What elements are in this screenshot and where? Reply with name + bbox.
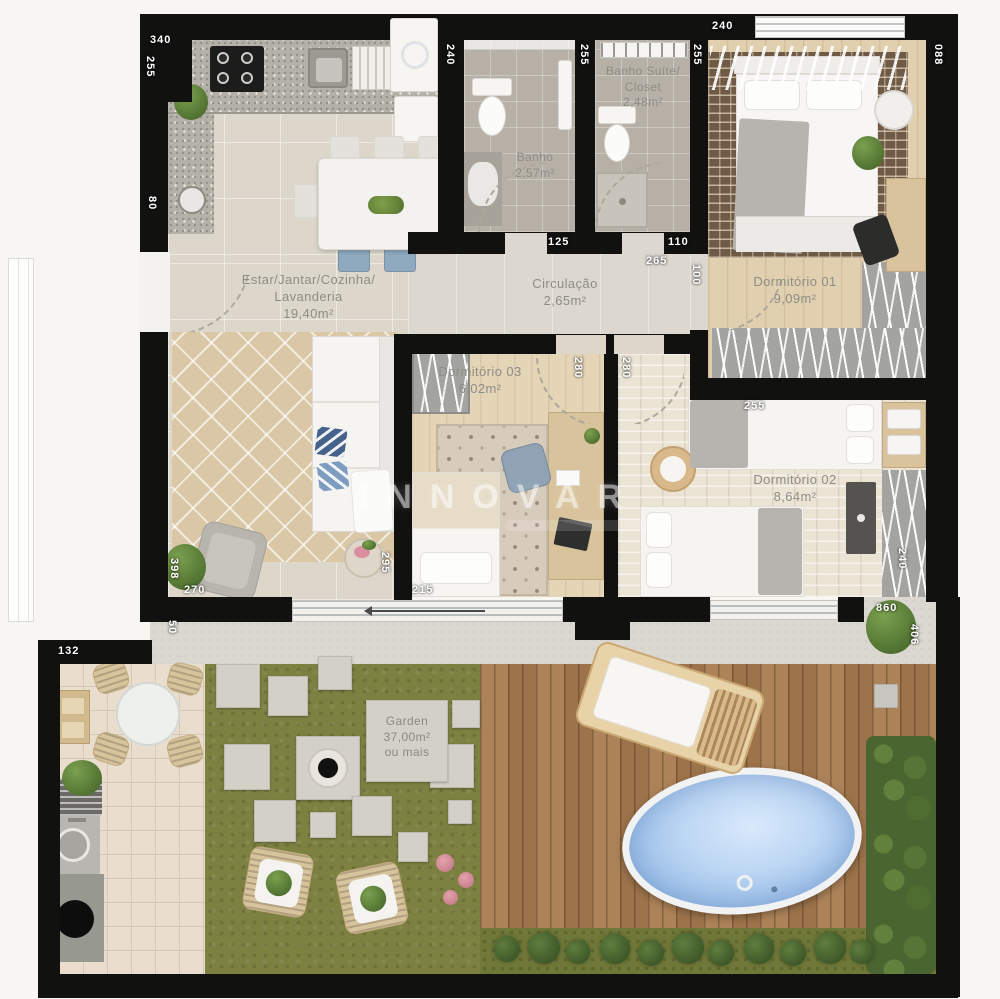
bath-name: Banho xyxy=(492,150,578,166)
wall-bottom-center-stub xyxy=(575,622,630,640)
living-area: 19,40m² xyxy=(226,306,391,323)
garden-paver xyxy=(310,812,336,838)
dim-label: 50 xyxy=(166,620,178,634)
living-sliding-door xyxy=(292,600,563,622)
nightstand-round xyxy=(874,90,914,130)
hedge xyxy=(866,736,936,974)
wall-bottom-center xyxy=(563,597,710,622)
sink-basin xyxy=(316,58,342,82)
floor-plan: Estar/Jantar/Cozinha/ Lavanderia 19,40m²… xyxy=(0,0,1000,999)
sofa-pillow-zigzag xyxy=(314,426,348,458)
dim-label: 265 xyxy=(646,255,667,267)
pink-flowers xyxy=(458,872,474,888)
bedroom3-door-arc xyxy=(536,354,606,424)
bed2-top-pillow xyxy=(846,404,874,432)
bedroom3-area: 6,02m² xyxy=(414,381,546,398)
shrub xyxy=(744,934,774,964)
bedroom2-label: Dormitório 02 8,64m² xyxy=(722,472,868,506)
walkway-floor xyxy=(150,620,936,664)
bed2-bottom-throw xyxy=(758,508,802,595)
bedroom3-label: Dormitório 03 6,02m² xyxy=(414,364,546,398)
stove-burner xyxy=(241,52,253,64)
bath-shelf xyxy=(558,60,572,130)
entry-opening xyxy=(138,252,170,332)
patio-bench xyxy=(56,690,90,744)
garden-paver xyxy=(224,744,270,790)
shrub xyxy=(494,936,520,962)
garden-note: ou mais xyxy=(366,745,448,761)
dim-label: 255 xyxy=(144,56,156,77)
pink-flowers xyxy=(443,890,458,905)
garden-chair xyxy=(334,860,410,936)
wall-bottom xyxy=(38,974,958,998)
bedroom2-door-opening xyxy=(614,335,664,354)
dim-label: 125 xyxy=(548,236,569,248)
wall-living-bedroom3 xyxy=(394,334,412,602)
dim-label: 280 xyxy=(620,357,632,378)
dim-label: 240 xyxy=(896,548,908,569)
bedroom1-label: Dormitório 01 9,09m² xyxy=(722,274,868,308)
dim-label: 255 xyxy=(578,44,590,65)
bed2-top-throw xyxy=(690,400,748,468)
garden-paver xyxy=(254,800,296,842)
bed2-bottom-pillow xyxy=(646,552,672,588)
bed2-top-pillow xyxy=(846,436,874,464)
dim-label: 132 xyxy=(58,645,79,657)
kitchen-side-sink xyxy=(178,186,206,214)
stove-burner xyxy=(241,72,253,84)
stove-burner xyxy=(217,72,229,84)
shrub xyxy=(708,940,734,966)
circulation-area: 2,65m² xyxy=(500,293,630,310)
shrub xyxy=(638,940,664,966)
watermark-tagline xyxy=(505,520,675,531)
shrub xyxy=(672,932,704,964)
desk-plant xyxy=(584,428,600,444)
bench-cushion xyxy=(61,721,85,739)
deck-paver xyxy=(874,684,898,708)
bedroom1-plant xyxy=(852,136,884,170)
dim-label: 240 xyxy=(444,44,456,65)
dim-label: 215 xyxy=(412,584,433,596)
shrub xyxy=(850,940,874,964)
dim-label: 406 xyxy=(908,624,920,645)
kitchen-side-counter xyxy=(168,114,214,234)
bath-door-opening xyxy=(505,233,547,254)
bath-suite-label: Banho Suíte/ Closet 2,48m² xyxy=(596,64,690,111)
pool-drain-ring xyxy=(736,874,753,891)
bath-suite-name: Banho Suíte/ xyxy=(596,64,690,80)
wall-balcony-top-left xyxy=(38,640,152,664)
shrub xyxy=(528,932,560,964)
dim-label: 100 xyxy=(690,264,702,285)
toilet-bowl xyxy=(478,96,506,136)
wall-bedroom1-bedroom2 xyxy=(690,378,926,400)
outdoor-plant xyxy=(62,760,102,796)
bedroom2-closet-rug xyxy=(882,470,926,597)
washer-drum xyxy=(401,41,429,69)
patio-table xyxy=(116,682,180,746)
suite-door-arc xyxy=(594,162,664,232)
suite-door-opening xyxy=(622,233,664,254)
dim-label: 110 xyxy=(668,236,689,248)
garden-paver xyxy=(268,676,308,716)
table-leaves xyxy=(362,540,376,550)
living-name2: Lavanderia xyxy=(226,289,391,306)
kitchen-sink xyxy=(308,48,348,88)
dim-label: 270 xyxy=(184,584,205,596)
bedroom1-closet-rug xyxy=(712,328,926,378)
bench-cushion xyxy=(61,697,85,715)
dim-label: 280 xyxy=(572,357,584,378)
bedroom1-closet-rug xyxy=(862,262,926,330)
outdoor-sink-basin xyxy=(56,828,90,862)
garden-paver xyxy=(352,796,392,836)
wall-bottom-right xyxy=(838,597,864,622)
watermark: INNOVAR xyxy=(310,478,690,517)
closet-box xyxy=(887,409,921,429)
bath-suite-name2: Closet xyxy=(596,80,690,96)
garden-label: Garden 37,00m² ou mais xyxy=(366,714,448,761)
bedroom2-closet-shelf xyxy=(882,402,926,468)
stove-burner xyxy=(217,52,229,64)
bedroom3-name: Dormitório 03 xyxy=(414,364,546,381)
bath-shower-glass xyxy=(464,40,575,50)
closet-rod xyxy=(600,42,688,58)
wall-balcony-left xyxy=(38,640,60,997)
bedroom2-area: 8,64m² xyxy=(722,489,868,506)
garden-area: 37,00m² xyxy=(366,730,448,746)
dim-label: 340 xyxy=(150,34,171,46)
pool-drain-dot xyxy=(771,886,778,893)
armchair-seat xyxy=(201,531,258,591)
bedroom1-curtain xyxy=(710,46,906,90)
slider-arrow xyxy=(367,610,485,612)
dim-label: 295 xyxy=(379,552,391,573)
dim-label: 860 xyxy=(876,602,897,614)
bath-label: Banho 2,57m² xyxy=(492,150,578,181)
bedroom1-desk xyxy=(886,178,926,272)
bedroom1-area: 9,09m² xyxy=(722,291,868,308)
washer xyxy=(390,18,438,92)
shrub xyxy=(566,940,590,964)
toilet-tank xyxy=(472,78,512,96)
bath-suite-area: 2,48m² xyxy=(596,95,690,111)
closet-box xyxy=(887,435,921,455)
garden-paver xyxy=(452,700,480,728)
dim-label: 255 xyxy=(744,400,765,412)
wall-balcony-right xyxy=(936,597,960,997)
bedroom1-door-opening xyxy=(690,250,708,334)
living-label: Estar/Jantar/Cozinha/ Lavanderia 19,40m² xyxy=(226,272,391,323)
stove xyxy=(210,46,264,92)
suite-toilet-bowl xyxy=(604,124,630,162)
exterior-ledge xyxy=(8,258,34,622)
garden-chair xyxy=(241,845,315,919)
cabinet-bowl xyxy=(56,900,94,938)
circulation-name: Circulação xyxy=(500,276,630,293)
bedroom3-door-opening xyxy=(556,335,606,354)
dim-label: 088 xyxy=(932,44,944,65)
bath-area: 2,57m² xyxy=(492,166,578,182)
dim-label: 240 xyxy=(712,20,733,32)
living-name: Estar/Jantar/Cozinha/ xyxy=(226,272,391,289)
shrub xyxy=(600,934,630,964)
dim-label: 255 xyxy=(691,44,703,65)
shrub xyxy=(780,940,806,966)
garden-name: Garden xyxy=(366,714,448,730)
wall-bottom-left xyxy=(140,597,292,622)
bedroom1-window xyxy=(755,16,905,38)
shrub xyxy=(814,932,846,964)
garden-paver xyxy=(216,664,260,708)
fire-pit xyxy=(308,748,348,788)
bedroom2-sliding-door xyxy=(710,600,838,620)
wall-right-top xyxy=(926,14,958,602)
circulation-label: Circulação 2,65m² xyxy=(500,276,630,310)
dining-chair xyxy=(294,184,318,218)
outdoor-faucet xyxy=(68,818,86,822)
bed3-pillow xyxy=(420,552,492,584)
lounger-cushion xyxy=(592,655,713,749)
bedroom1-name: Dormitório 01 xyxy=(722,274,868,291)
fire-pit-bowl xyxy=(318,758,338,778)
table-centerpiece xyxy=(368,196,404,214)
garden-paver xyxy=(448,800,472,824)
slider-arrowhead-icon xyxy=(359,606,372,616)
pink-flowers xyxy=(436,854,454,872)
bedroom2-name: Dormitório 02 xyxy=(722,472,868,489)
console-knob xyxy=(857,514,865,522)
garden-paver xyxy=(398,832,428,862)
dim-label: 398 xyxy=(168,558,180,579)
garden-paver xyxy=(318,656,352,690)
dim-label: 80 xyxy=(146,196,158,210)
